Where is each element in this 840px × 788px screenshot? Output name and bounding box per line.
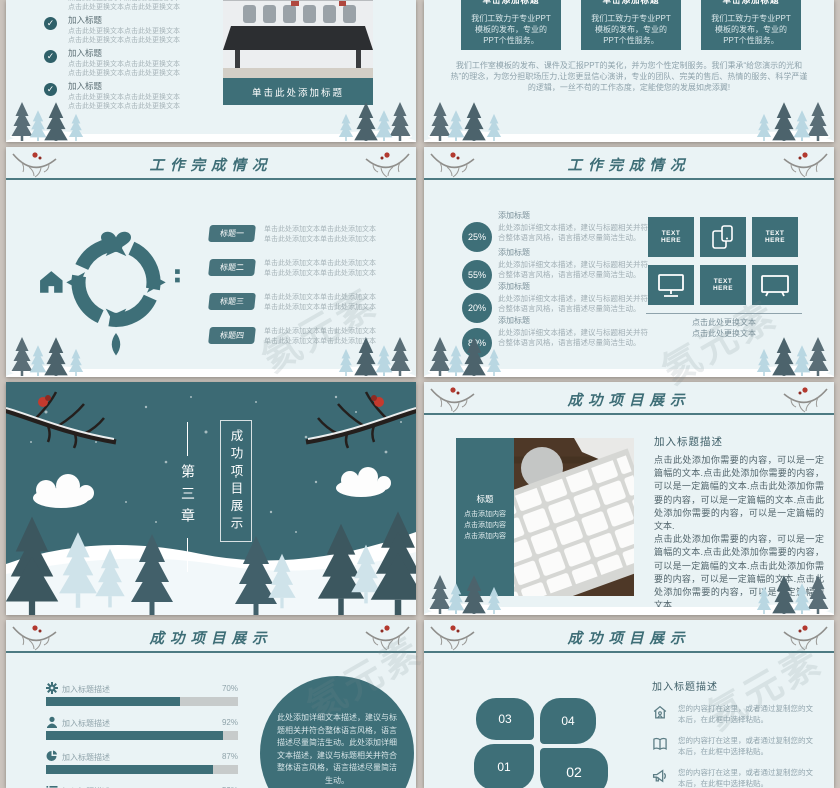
stat-desc: 此处添加详细文本描述，建议与标题相关并符合整体语言风格，语言描述尽量简洁生动。 [498, 294, 650, 314]
slide-title: 工作完成情况 [424, 154, 834, 175]
title-divider [6, 178, 416, 180]
petal-step: 03 [476, 698, 534, 740]
percent-badge: 20% [462, 293, 492, 323]
list-item: 您的内容打在这里，或者通过复制您的文本后，在此框中选择粘贴。 [652, 736, 824, 752]
box-title: 单击添加标题 [461, 0, 561, 6]
chapter-number: 第三章 [177, 464, 197, 530]
title-tag: 标题四 [208, 327, 256, 344]
winter-scene [6, 382, 416, 615]
content-box: 单击添加标题 我们工致力于专业PPT模板的发布，专业的PPT个性服务。 [581, 0, 681, 50]
stat-block: 添加标题 此处添加详细文本描述，建议与标题相关并符合整体语言风格，语言描述尽量简… [498, 247, 650, 280]
panel-line: 点击添加内容 [464, 520, 506, 531]
check-item: ✓ 加入标题 点击此处更换文本点击此处更换文本 点击此处更换文本点击此处更换文本 [44, 46, 214, 76]
petal-step: 04 [540, 698, 596, 744]
pine-trees-decoration [10, 97, 102, 141]
section-heading: 加入标题描述 [654, 434, 723, 449]
footer-divider [646, 313, 802, 314]
check-item: ✓ 加入标题 点击此处更换文本点击此处更换文本 点击此处更换文本点击此处更换文本 [44, 0, 214, 10]
list-item: 您的内容打在这里，或者通过复制您的文本后，在此框中选择粘贴。 [652, 704, 824, 720]
percent-badge: 25% [462, 222, 492, 252]
content-box: 单击添加标题 我们工致力于专业PPT模板的发布，专业的PPT个性服务。 [461, 0, 561, 50]
leaf-icon [112, 333, 120, 356]
slide-8-thumbnail[interactable]: 成功项目展示 03 04 01 02 加入标题描述 您的内容打在这里，或者通过复… [424, 620, 834, 788]
box-body: 我们工致力于专业PPT模板的发布，专业的PPT个性服务。 [589, 13, 673, 46]
tv-icon [752, 265, 798, 305]
title-divider [424, 651, 834, 653]
panel-line: 点击添加内容 [464, 531, 506, 542]
meeting-room-photo: 单击此处添加标题 [223, 0, 373, 105]
stat-title: 添加标题 [498, 315, 650, 326]
slide-3-thumbnail[interactable]: 工作完成情况 标题一 单击此处添加文本单击此处添加文本单击此处添加文本单 [6, 147, 416, 377]
progress-track [46, 731, 238, 740]
title-tag: 标题二 [208, 259, 256, 276]
tag-text: 单击此处添加文本单击此处添加文本单击此处添加文本单击此处添加文本 [264, 225, 412, 244]
box-title: 单击添加标题 [701, 0, 801, 6]
check-item: ✓ 加入标题 点击此处更换文本点击此处更换文本 点击此处更换文本点击此处更换文本 [44, 13, 214, 43]
check-item-title: 加入标题 [68, 14, 102, 26]
description-circle: 此处添加详细文本描述，建议与标题相关并符合整体语言风格，语言描述尽量简洁生动。此… [260, 676, 414, 788]
stat-desc: 此处添加详细文本描述，建议与标题相关并符合整体语言风格，语言描述尽量简洁生动。 [498, 328, 650, 348]
check-item-title: 加入标题 [68, 80, 102, 92]
progress-fill [46, 697, 180, 706]
text-tile: TEXT HERE [700, 265, 746, 305]
intro-paragraph: 我们工作室模板的发布、课件及汇报PPT的美化，并为您个性定制服务。我们秉承“给您… [448, 60, 810, 93]
megaphone-icon [652, 768, 668, 784]
title-divider [424, 413, 834, 415]
slide-1-thumbnail[interactable]: ✓ 加入标题 点击此处更换文本点击此处更换文本 点击此处更换文本点击此处更换文本… [6, 0, 416, 142]
check-icon: ✓ [44, 17, 57, 30]
pine-trees-decoration [320, 332, 412, 376]
check-item-title: 加入标题 [68, 47, 102, 59]
placeholder-text: 点击此处更换文本点击此处更换文本 [68, 68, 180, 78]
vertical-line [187, 538, 188, 572]
pine-trees-decoration [10, 332, 102, 376]
home-icon [652, 704, 668, 720]
footer-text: 点击此处更换文本 [646, 317, 802, 328]
progress-item: 加入标题描述 70% [46, 682, 238, 706]
progress-track [46, 765, 238, 774]
box-title: 单击添加标题 [581, 0, 681, 6]
stat-title: 添加标题 [498, 210, 650, 221]
box-body: 我们工致力于专业PPT模板的发布，专业的PPT个性服务。 [709, 13, 793, 46]
pine-trees-decoration [428, 570, 520, 614]
slide-title: 工作完成情况 [6, 154, 416, 175]
stat-title: 添加标题 [498, 281, 650, 292]
placeholder-text: 点击此处更换文本点击此处更换文本 [68, 35, 180, 45]
list-icon [46, 784, 58, 788]
slide-5-thumbnail[interactable]: 第三章 成功项目展示 [6, 382, 416, 615]
petal-step: 01 [474, 744, 534, 788]
check-icon: ✓ [44, 50, 57, 63]
slide-title: 成功项目展示 [424, 627, 834, 648]
bar-label: 加入标题描述 [62, 752, 110, 763]
section-heading: 加入标题描述 [652, 678, 718, 693]
chapter-label: 第三章 [178, 422, 196, 572]
text-tile: TEXT HERE [752, 217, 798, 257]
stat-block: 添加标题 此处添加详细文本描述，建议与标题相关并符合整体语言风格，语言描述尽量简… [498, 210, 650, 243]
content-box: 单击添加标题 我们工致力于专业PPT模板的发布，专业的PPT个性服务。 [701, 0, 801, 50]
text-tile: TEXT HERE [648, 217, 694, 257]
book-icon [652, 736, 668, 752]
progress-item: 加入标题描述 52% [46, 784, 238, 788]
item-text: 您的内容打在这里，或者通过复制您的文本后，在此框中选择粘贴。 [678, 736, 818, 757]
bar-percent: 70% [222, 684, 238, 693]
slide-2-thumbnail[interactable]: 单击添加标题 我们工致力于专业PPT模板的发布，专业的PPT个性服务。 单击添加… [424, 0, 834, 142]
pie-chart-icon [46, 750, 58, 762]
template-preview-page: ✓ 加入标题 点击此处更换文本点击此处更换文本 点击此处更换文本点击此处更换文本… [0, 0, 840, 788]
progress-track [46, 697, 238, 706]
stat-desc: 此处添加详细文本描述，建议与标题相关并符合整体语言风格，语言描述尽量简洁生动。 [498, 223, 650, 243]
home-icon [40, 271, 63, 293]
pine-trees-decoration [738, 570, 830, 614]
phone-icon [700, 217, 746, 257]
bar-label: 加入标题描述 [62, 718, 110, 729]
list-item: 您的内容打在这里，或者通过复制您的文本后，在此框中选择粘贴。 [652, 768, 824, 784]
pine-trees-decoration [738, 332, 830, 376]
check-icon: ✓ [44, 83, 57, 96]
progress-fill [46, 765, 213, 774]
pine-trees-decoration [738, 97, 830, 141]
tag-text: 单击此处添加文本单击此处添加文本单击此处添加文本单击此处添加文本 [264, 259, 412, 278]
paragraph: 点击此处添加你需要的内容，可以是一定篇幅的文本.点击此处添加你需要的内容，可以是… [654, 454, 824, 533]
monitor-icon [648, 265, 694, 305]
stat-block: 添加标题 此处添加详细文本描述，建议与标题相关并符合整体语言风格，语言描述尽量简… [498, 281, 650, 314]
bar-label: 加入标题描述 [62, 684, 110, 695]
panel-title: 标题 [476, 493, 493, 505]
item-text: 您的内容打在这里，或者通过复制您的文本后，在此框中选择粘贴。 [678, 768, 818, 788]
slide-6-thumbnail[interactable]: 成功项目展示 标题 点击添加内容 点击添 [424, 382, 834, 615]
chapter-title: 成功项目展示 [227, 429, 246, 534]
gear-icon [46, 682, 58, 694]
bar-percent: 92% [222, 718, 238, 727]
title-tag: 标题一 [208, 225, 256, 242]
slide-title: 成功项目展示 [424, 389, 834, 410]
pine-trees-decoration [428, 332, 520, 376]
pine-trees-decoration [320, 97, 412, 141]
title-divider [424, 178, 834, 180]
user-icon [46, 716, 58, 728]
stat-title: 添加标题 [498, 247, 650, 258]
progress-item: 加入标题描述 87% [46, 750, 238, 774]
progress-item: 加入标题描述 92% [46, 716, 238, 740]
pine-trees-decoration [428, 97, 520, 141]
tag-text: 单击此处添加文本单击此处添加文本单击此处添加文本单击此处添加文本 [264, 293, 412, 312]
stat-block: 添加标题 此处添加详细文本描述，建议与标题相关并符合整体语言风格，语言描述尽量简… [498, 315, 650, 348]
percent-badge: 55% [462, 260, 492, 290]
slide-4-thumbnail[interactable]: 工作完成情况 25% 添加标题 此处添加详细文本描述，建议与标题相关并符合整体语… [424, 147, 834, 377]
placeholder-text: 点击此处更换文本点击此处更换文本 [68, 2, 180, 12]
bar-percent: 87% [222, 752, 238, 761]
item-text: 您的内容打在这里，或者通过复制您的文本后，在此框中选择粘贴。 [678, 704, 818, 725]
title-tag: 标题三 [208, 293, 256, 310]
petal-step: 02 [540, 748, 608, 788]
slide-7-thumbnail[interactable]: 成功项目展示 加入标题描述 70% 加入标题描述 92% [6, 620, 416, 788]
progress-fill [46, 731, 223, 740]
slide-title: 成功项目展示 [6, 627, 416, 648]
vertical-line [187, 422, 188, 456]
chapter-title-box: 成功项目展示 [220, 420, 252, 542]
panel-line: 点击添加内容 [464, 509, 506, 520]
stat-desc: 此处添加详细文本描述，建议与标题相关并符合整体语言风格，语言描述尽量简洁生动。 [498, 260, 650, 280]
box-body: 我们工致力于专业PPT模板的发布，专业的PPT个性服务。 [469, 13, 553, 46]
title-divider [6, 651, 416, 653]
